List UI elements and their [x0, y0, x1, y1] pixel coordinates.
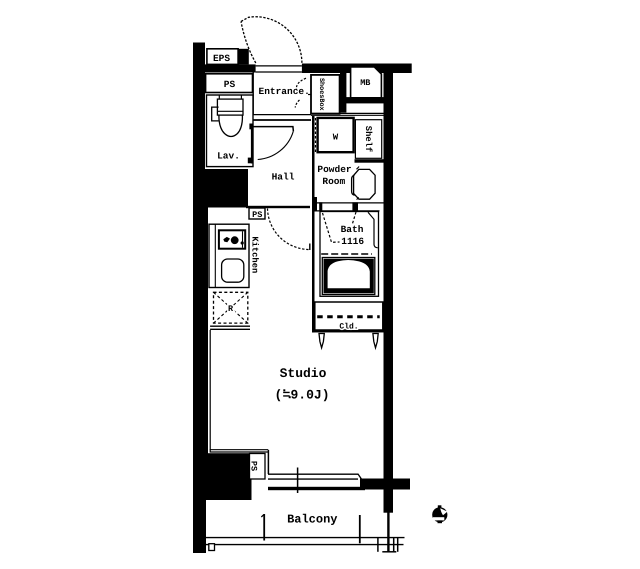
- svg-text:Studio: Studio: [280, 366, 327, 381]
- svg-text:PS: PS: [249, 461, 259, 471]
- svg-text:Balcony: Balcony: [287, 513, 337, 527]
- svg-text:PS: PS: [224, 79, 236, 90]
- svg-text:R: R: [228, 304, 234, 314]
- svg-text:PS: PS: [252, 210, 262, 220]
- svg-text:Shelf: Shelf: [363, 126, 373, 152]
- svg-text:(: (: [275, 387, 283, 402]
- svg-text:Lav.: Lav.: [217, 151, 240, 162]
- svg-text:Kitchen: Kitchen: [250, 236, 260, 273]
- svg-text:Cld.: Cld.: [339, 323, 358, 332]
- svg-text:Hall: Hall: [272, 172, 295, 183]
- svg-text:ShoesBox: ShoesBox: [317, 78, 325, 111]
- svg-text:Bath: Bath: [341, 224, 364, 235]
- svg-text:Entrance.: Entrance.: [259, 86, 310, 97]
- svg-text:Room: Room: [322, 176, 345, 187]
- svg-text:MB: MB: [360, 78, 370, 88]
- svg-text:9.0J): 9.0J): [291, 387, 330, 402]
- svg-text:W: W: [333, 133, 339, 143]
- svg-text:Powder: Powder: [317, 164, 352, 175]
- svg-text:EPS: EPS: [213, 53, 230, 64]
- svg-text:1116: 1116: [341, 236, 364, 247]
